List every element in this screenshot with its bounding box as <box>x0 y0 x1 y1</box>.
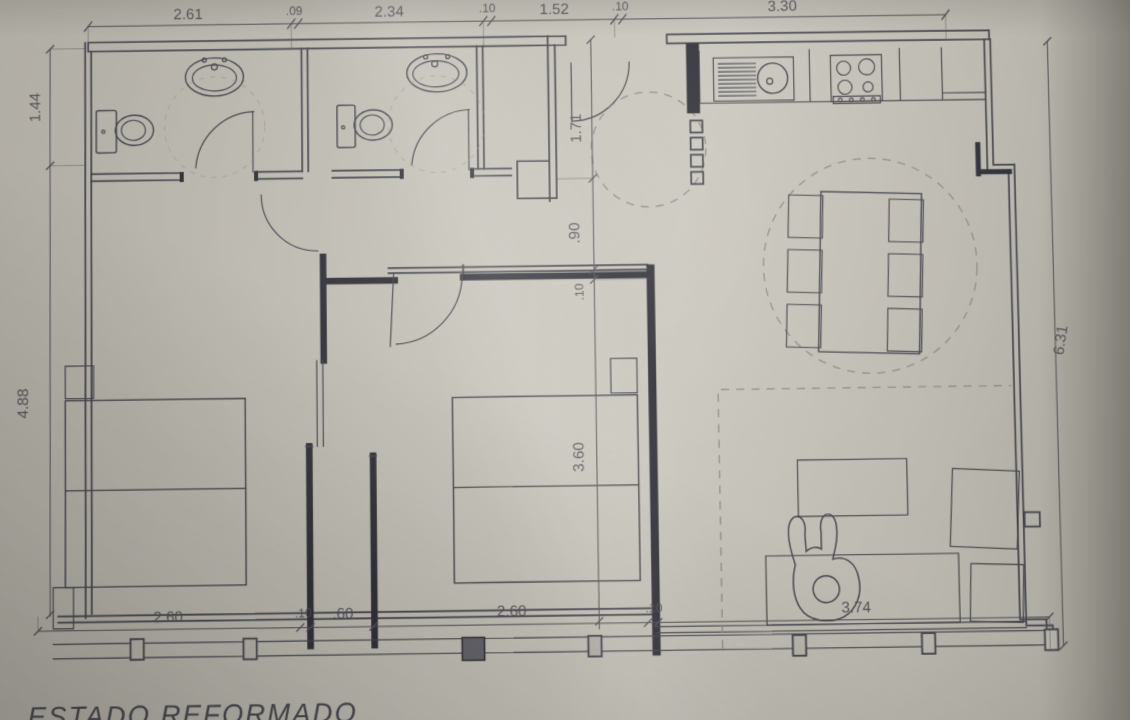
dim-label: .10 <box>612 0 629 13</box>
burner <box>863 82 873 92</box>
dimension-chain-center: 1.71 .90 .10 3.60 <box>555 35 657 630</box>
bed-2 <box>452 395 640 583</box>
dimension-chain-right: 6.31 <box>1042 37 1081 650</box>
dim-label: 2.60 <box>153 609 183 627</box>
drainboard-hatch <box>718 63 756 96</box>
hall-walls <box>261 190 656 657</box>
stove <box>830 55 882 102</box>
facade-band <box>53 626 1058 666</box>
dim-label: .10 <box>479 1 496 15</box>
bathroom1-door-arc <box>196 112 254 168</box>
chair <box>889 199 924 242</box>
facade-post <box>793 635 807 656</box>
coffee-table <box>797 459 908 517</box>
dimension-chain-left: 1.44 4.88 <box>15 45 86 620</box>
floor-plan-svg: 2.61 .09 2.34 .10 1.52 .10 3.30 1.44 4.8… <box>0 0 1130 720</box>
nightstand-1 <box>65 366 93 399</box>
bedroom2-door-leaf <box>390 273 395 346</box>
dim-label: 2.34 <box>375 3 404 20</box>
bedroom-2 <box>452 358 640 583</box>
dining-clearance-circle <box>762 156 978 375</box>
chair <box>788 195 823 238</box>
entry-door-arc <box>571 62 630 121</box>
plan-title: ESTADO REFORMADO <box>28 697 358 720</box>
kitchen-sink-basin <box>757 63 788 94</box>
partition-block <box>691 172 703 184</box>
facade-post <box>1045 629 1059 650</box>
dim-label: 3.30 <box>768 0 798 15</box>
bedroom1-door-arc <box>261 194 318 251</box>
drawing-paper: 2.61 .09 2.34 .10 1.52 .10 3.30 1.44 4.8… <box>0 0 1130 720</box>
person-head <box>813 576 840 603</box>
dim-label: 1.52 <box>540 1 569 18</box>
dim-label: .09 <box>286 4 303 18</box>
dim-label: 2.60 <box>497 603 527 621</box>
burner <box>858 59 874 75</box>
partition-block <box>691 137 703 149</box>
facade-post <box>922 633 936 654</box>
side-seat <box>970 564 1023 623</box>
partition-block <box>691 155 703 167</box>
facade-post <box>243 639 256 660</box>
dining-area <box>762 156 978 375</box>
bathroom1-toilet-tank <box>96 110 116 153</box>
clearance-circle <box>388 75 485 173</box>
facade-post <box>588 636 602 657</box>
living-area <box>718 385 1026 648</box>
kitchen <box>667 30 993 184</box>
photo-background: 2.61 .09 2.34 .10 1.52 .10 3.30 1.44 4.8… <box>0 0 1130 720</box>
dim-label: 3.74 <box>841 599 871 617</box>
bedroom2-living-wall <box>650 269 656 652</box>
bedroom2-top-wall <box>463 275 650 278</box>
dim-label: 1.71 <box>568 113 585 143</box>
armchair <box>950 468 1019 549</box>
entry-door-leaf <box>571 63 572 121</box>
dim-label: .10 <box>645 601 663 616</box>
bathroom2-toilet-tank <box>337 105 355 147</box>
bathroom2-sink-drain <box>432 61 438 67</box>
dimension-chain-top: 2.61 .09 2.34 .10 1.52 .10 3.30 <box>84 0 950 52</box>
nightstand-2 <box>611 358 638 393</box>
bathroom-2 <box>337 53 486 174</box>
dim-label: 6.31 <box>1050 324 1071 356</box>
facade-post <box>131 639 144 660</box>
dim-label: 4.88 <box>15 388 32 418</box>
dim-label: 2.61 <box>174 6 203 23</box>
bedroom2-door-arc <box>396 275 463 344</box>
dining-table <box>819 192 922 354</box>
shaft-wall-right <box>373 456 375 645</box>
burner <box>836 61 850 75</box>
burner <box>838 80 852 94</box>
dim-label: 1.44 <box>27 93 44 123</box>
wall-fixture <box>1024 512 1040 527</box>
bathroom2-door-leaf <box>468 110 469 170</box>
chair <box>786 304 821 347</box>
dim-label: .10 <box>572 283 586 300</box>
dim-label: .60 <box>332 605 353 623</box>
dim-label: 3.60 <box>570 442 588 472</box>
chair <box>887 308 922 351</box>
floor-plan: 2.61 .09 2.34 .10 1.52 .10 3.30 1.44 4.8… <box>15 0 1083 720</box>
chair <box>787 250 822 293</box>
dim-label: .10 <box>295 606 312 621</box>
bathroom-1 <box>96 57 265 179</box>
dim-label: .90 <box>566 222 583 243</box>
wall-stub <box>686 43 700 113</box>
facade-pillar <box>462 637 485 660</box>
bedroom1-wall <box>323 257 324 361</box>
chair <box>888 254 923 297</box>
bathroom2-door-arc <box>411 110 470 165</box>
